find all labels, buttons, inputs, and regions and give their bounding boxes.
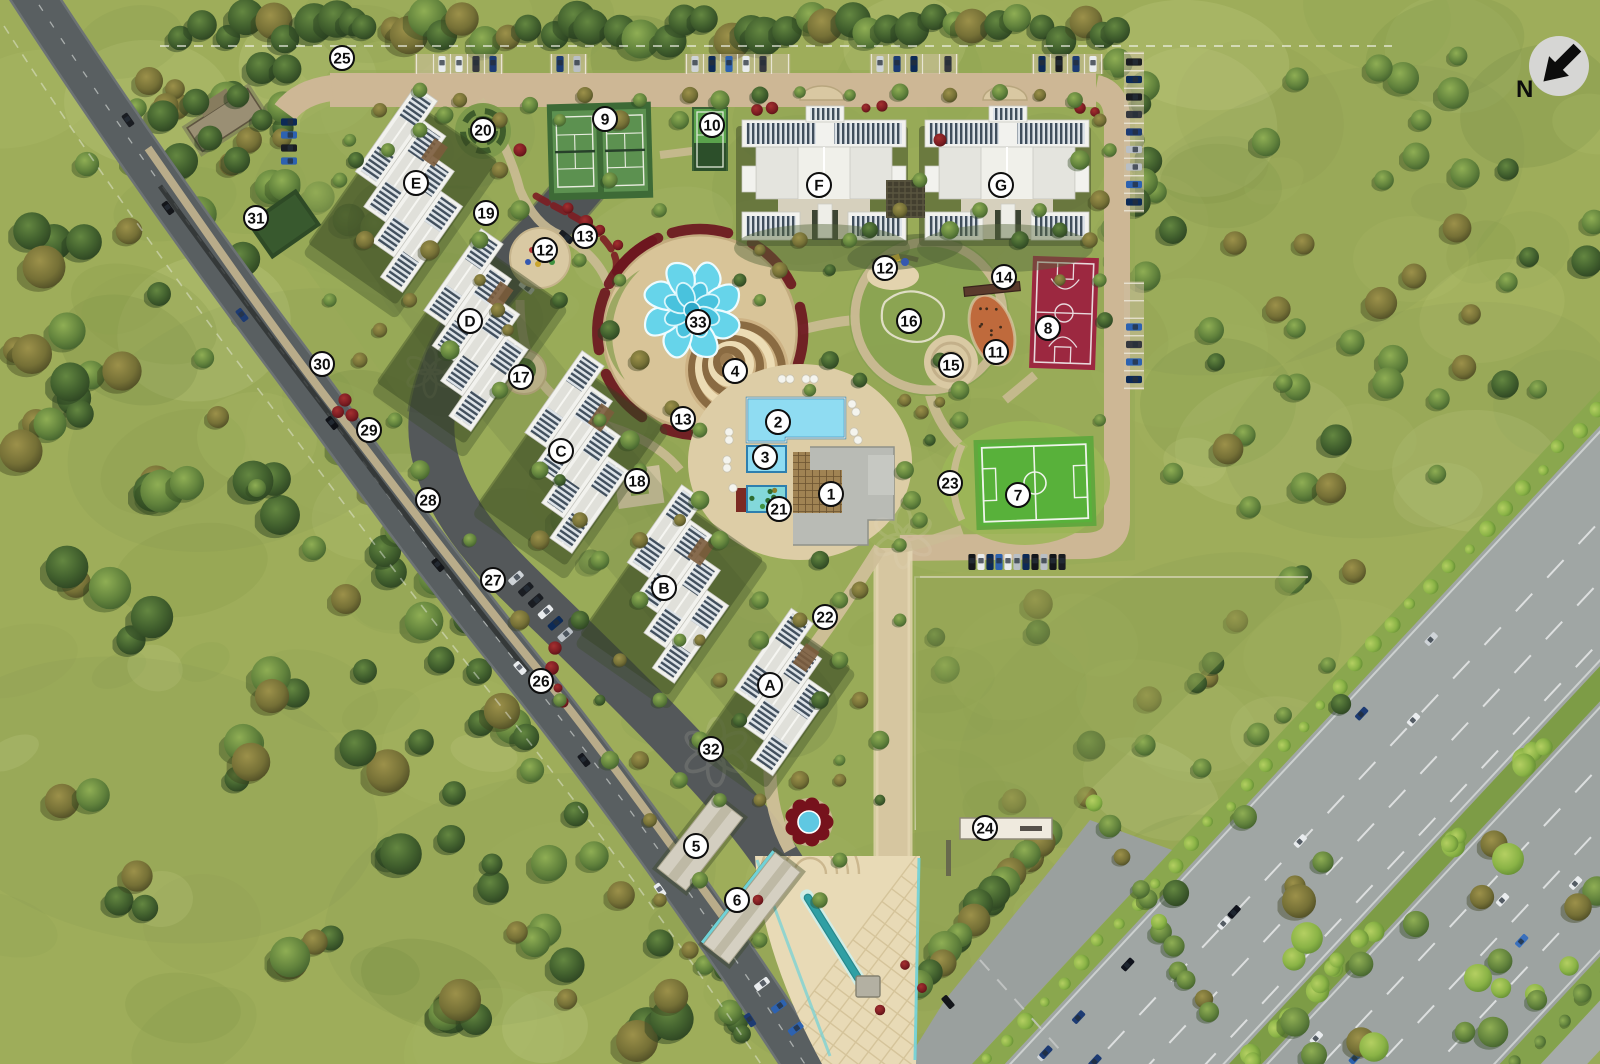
svg-text:4: 4 — [731, 364, 740, 381]
svg-text:31: 31 — [247, 211, 265, 228]
svg-text:33: 33 — [689, 315, 707, 332]
svg-text:25: 25 — [333, 51, 351, 68]
svg-text:5: 5 — [692, 839, 701, 856]
svg-text:30: 30 — [313, 357, 330, 374]
svg-text:16: 16 — [900, 314, 918, 331]
svg-text:29: 29 — [360, 423, 378, 440]
svg-text:15: 15 — [942, 358, 960, 375]
svg-text:18: 18 — [628, 474, 646, 491]
svg-text:8: 8 — [1044, 321, 1053, 338]
svg-text:6: 6 — [733, 893, 742, 910]
svg-text:13: 13 — [674, 412, 692, 429]
svg-text:12: 12 — [536, 243, 553, 260]
svg-text:N: N — [1516, 76, 1533, 103]
svg-text:32: 32 — [702, 742, 719, 759]
svg-text:23: 23 — [941, 476, 959, 493]
svg-text:3: 3 — [761, 450, 770, 467]
svg-text:28: 28 — [419, 493, 437, 510]
svg-text:C: C — [555, 444, 566, 461]
svg-text:B: B — [658, 581, 669, 598]
svg-text:24: 24 — [976, 821, 994, 838]
svg-text:9: 9 — [601, 112, 610, 129]
svg-text:E: E — [411, 176, 421, 193]
svg-text:2: 2 — [774, 415, 783, 432]
svg-text:17: 17 — [512, 370, 529, 387]
svg-text:14: 14 — [995, 270, 1013, 287]
svg-text:12: 12 — [876, 261, 893, 278]
svg-text:11: 11 — [988, 345, 1005, 362]
svg-text:A: A — [764, 678, 775, 695]
svg-text:G: G — [995, 178, 1007, 195]
svg-text:D: D — [464, 314, 475, 331]
svg-text:10: 10 — [703, 118, 720, 135]
svg-text:27: 27 — [484, 573, 501, 590]
svg-text:F: F — [814, 178, 823, 195]
svg-text:13: 13 — [576, 229, 594, 246]
svg-text:21: 21 — [770, 502, 788, 519]
svg-text:7: 7 — [1014, 488, 1023, 505]
svg-text:19: 19 — [477, 206, 495, 223]
svg-text:20: 20 — [474, 123, 491, 140]
svg-text:26: 26 — [532, 674, 550, 691]
svg-text:22: 22 — [816, 610, 833, 627]
svg-text:1: 1 — [827, 487, 836, 504]
